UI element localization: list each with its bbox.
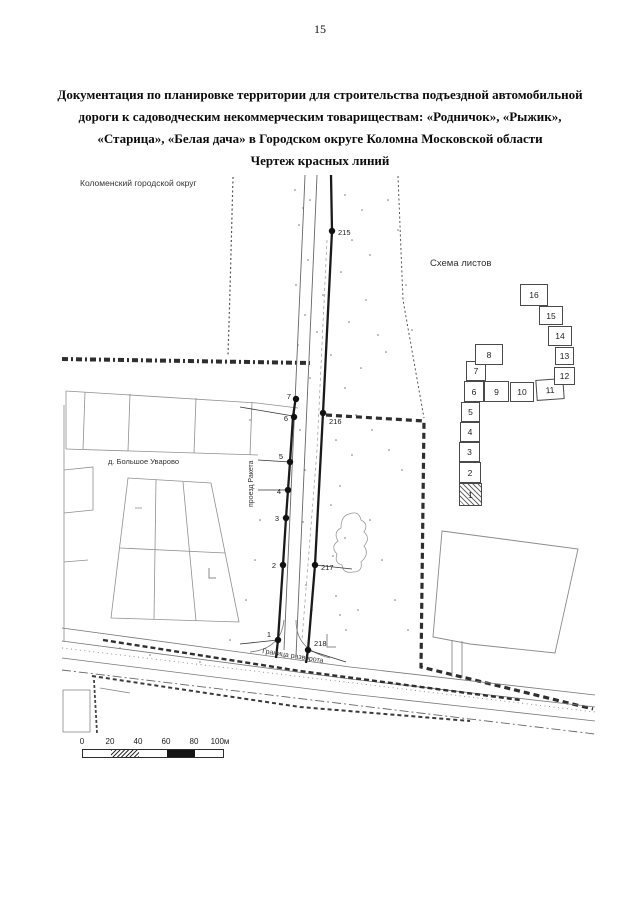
street-label: проезд Ракета (248, 460, 255, 507)
scale-tick-60: 60 (162, 737, 171, 746)
sheet-box-14: 14 (548, 326, 572, 346)
boundary-lines (62, 176, 593, 709)
point-label-216: 216 (329, 417, 342, 426)
sheet-box-1: 1 (459, 483, 482, 506)
sheet-box-6: 6 (464, 381, 484, 402)
point-label-3: 3 (275, 514, 279, 523)
scale-tick-40: 40 (134, 737, 143, 746)
point-label-1: 1 (267, 630, 271, 639)
scale-tick-20: 20 (106, 737, 115, 746)
point-label-215: 215 (338, 228, 351, 237)
scale-tick-80: 80 (190, 737, 199, 746)
sheet-box-12: 12 (554, 367, 575, 385)
scale-segment (111, 750, 139, 757)
scale-tick-0: 0 (80, 737, 84, 746)
point-label-2: 2 (272, 561, 276, 570)
point-label-217: 217 (321, 563, 334, 572)
sheet-box-16: 16 (520, 284, 548, 306)
sheet-box-2: 2 (459, 462, 481, 483)
parcel-outlines (64, 391, 298, 642)
village-label: д. Большое Уварово (108, 457, 179, 466)
corner-marks (209, 568, 336, 647)
scale-bar (82, 749, 224, 758)
point-label-7: 7 (287, 392, 291, 401)
document-page: 15 Документация по планировке территории… (0, 0, 640, 905)
sheet-scheme-title: Схема листов (430, 258, 491, 269)
road-edges (250, 175, 330, 658)
boundary-label: Граница разворота (262, 648, 324, 665)
sheet-box-3: 3 (459, 442, 480, 462)
vegetation-dots (119, 189, 413, 663)
scale-segment (195, 750, 223, 757)
bottom-road (62, 628, 595, 734)
map-drawing: 7 6 5 4 3 2 1 215 216 217 218 Коломенски… (0, 0, 640, 905)
sheet-box-5: 5 (461, 402, 480, 422)
sheet-box-4: 4 (460, 422, 480, 442)
sheet-box-13: 13 (555, 347, 574, 365)
bush-outline (334, 513, 368, 573)
sheet-box-9: 9 (484, 381, 509, 402)
building-outline (433, 531, 578, 678)
point-label-4: 4 (277, 487, 281, 496)
region-label: Коломенский городской округ (80, 178, 197, 188)
sheet-box-8: 8 (475, 344, 503, 365)
sheet-box-15: 15 (539, 306, 563, 325)
point-label-6: 6 (284, 414, 288, 423)
scale-segment (167, 750, 195, 757)
point-label-5: 5 (279, 452, 283, 461)
scale-tick-100: 100м (211, 737, 230, 746)
sheet-box-10: 10 (510, 382, 534, 402)
scale-segment (139, 750, 167, 757)
point-label-218: 218 (314, 639, 327, 648)
scale-segment (83, 750, 111, 757)
